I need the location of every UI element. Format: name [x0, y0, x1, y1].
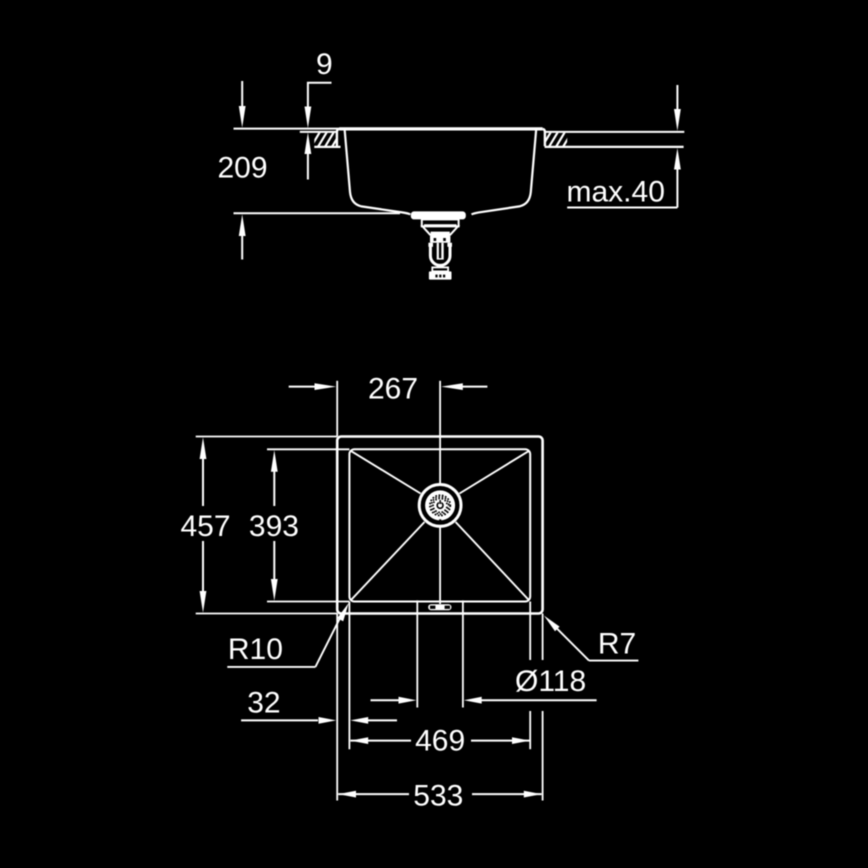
svg-text:9: 9 [316, 48, 333, 81]
svg-text:267: 267 [368, 373, 418, 406]
svg-text:max.40: max.40 [567, 176, 665, 209]
svg-text:Ø118: Ø118 [515, 665, 586, 698]
svg-text:393: 393 [249, 510, 299, 543]
svg-text:R10: R10 [228, 633, 283, 666]
svg-text:457: 457 [181, 510, 231, 543]
svg-text:R7: R7 [598, 628, 636, 661]
svg-text:533: 533 [413, 780, 463, 813]
svg-text:469: 469 [415, 725, 465, 758]
svg-text:32: 32 [247, 687, 280, 720]
svg-text:209: 209 [218, 152, 268, 185]
